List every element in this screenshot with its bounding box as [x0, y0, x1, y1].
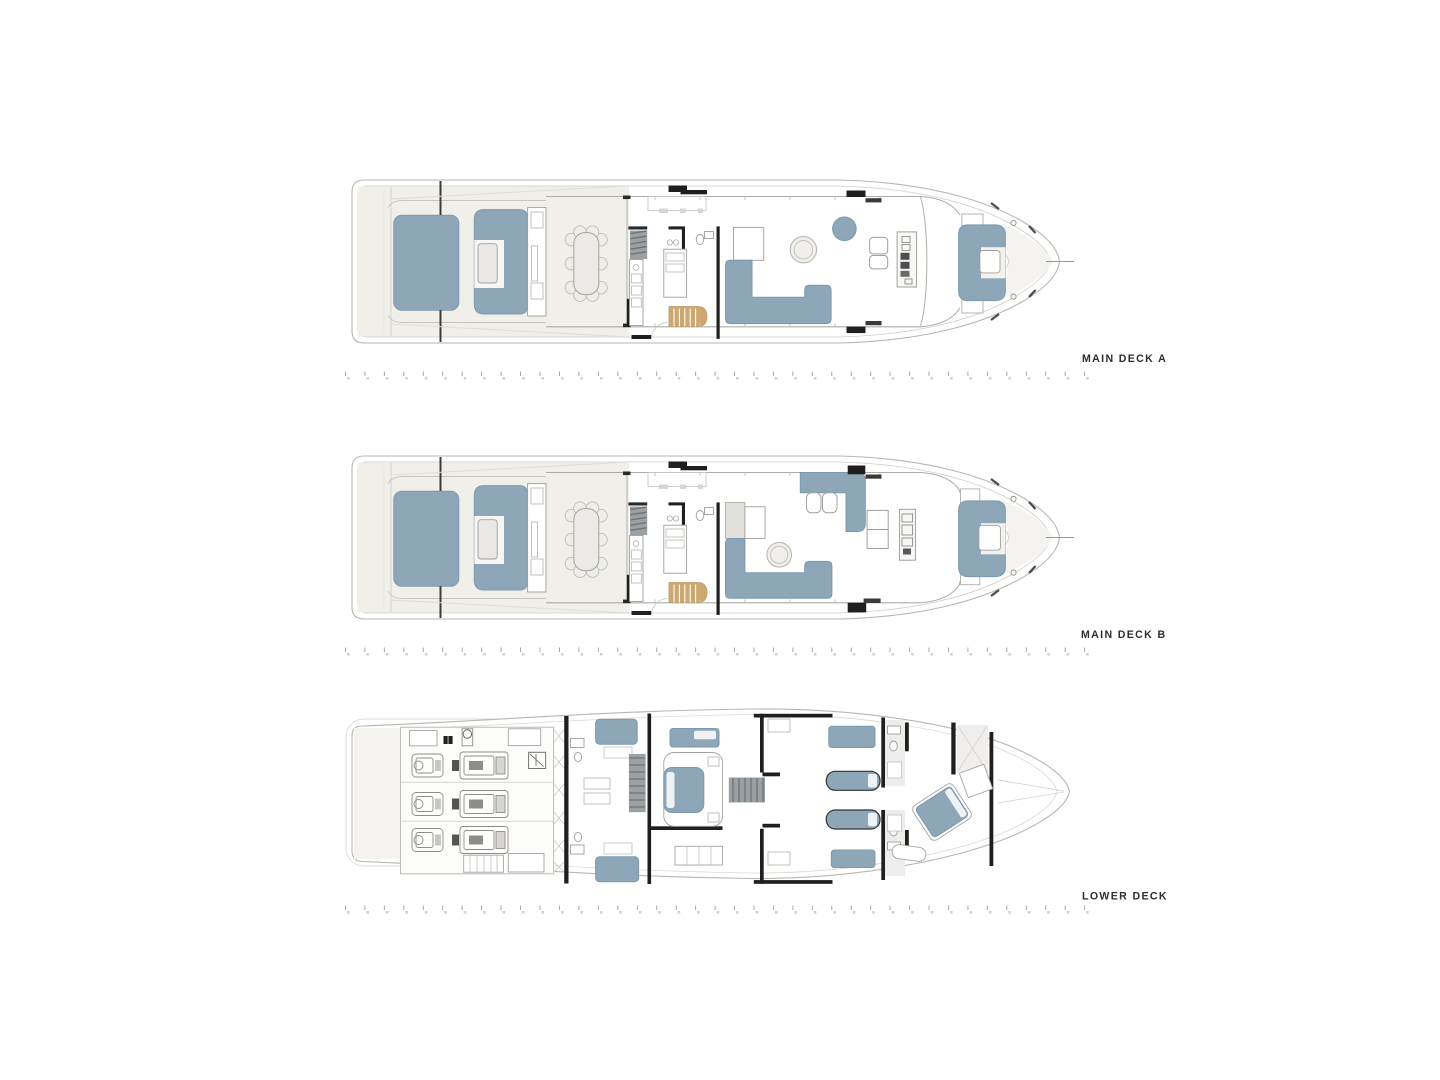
- svg-text:MAIN DECK A: MAIN DECK A: [1082, 353, 1167, 365]
- svg-text:LOWER DECK: LOWER DECK: [1082, 891, 1168, 903]
- svg-text:MAIN DECK B: MAIN DECK B: [1081, 629, 1166, 641]
